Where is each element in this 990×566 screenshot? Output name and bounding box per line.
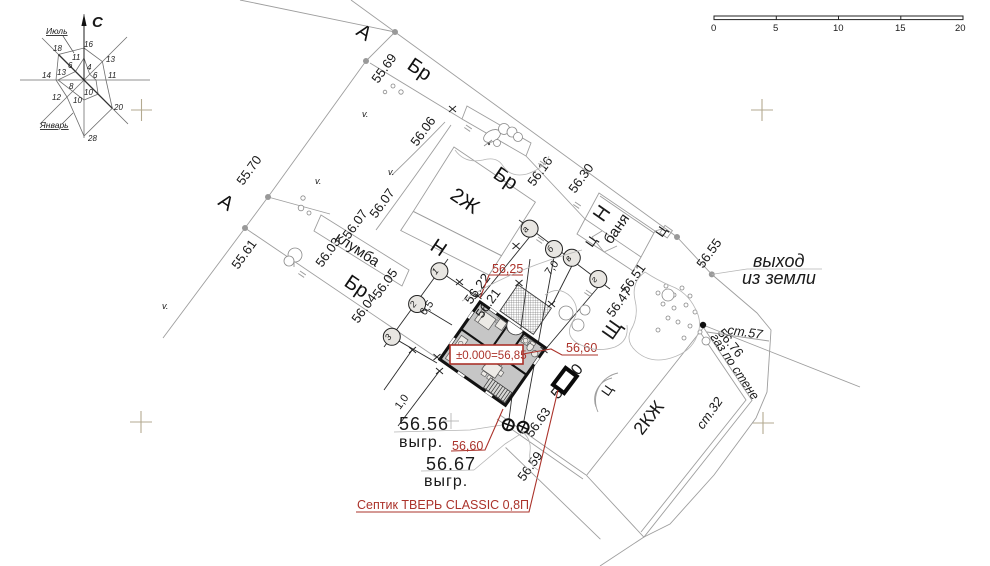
svg-text:18: 18 bbox=[53, 44, 62, 53]
svg-text:13: 13 bbox=[106, 55, 115, 64]
svg-text:C: C bbox=[92, 14, 104, 31]
svg-text:4: 4 bbox=[87, 63, 92, 72]
svg-text:±0.000=56,85: ±0.000=56,85 bbox=[456, 350, 527, 362]
svg-text:6: 6 bbox=[93, 71, 98, 80]
svg-text:из земли: из земли bbox=[742, 268, 816, 288]
svg-text:v.: v. bbox=[315, 176, 321, 186]
svg-text:14: 14 bbox=[42, 71, 51, 80]
svg-text:56,60: 56,60 bbox=[566, 341, 597, 355]
svg-text:20: 20 bbox=[113, 103, 123, 112]
svg-text:выгр.: выгр. bbox=[399, 434, 443, 451]
svg-text:8: 8 bbox=[69, 82, 74, 91]
svg-text:6: 6 bbox=[68, 61, 73, 70]
svg-text:10: 10 bbox=[833, 23, 844, 34]
svg-text:11: 11 bbox=[72, 53, 80, 62]
svg-text:10: 10 bbox=[84, 88, 93, 97]
svg-text:28: 28 bbox=[87, 134, 97, 143]
svg-text:16: 16 bbox=[84, 40, 93, 49]
svg-text:v.: v. bbox=[162, 301, 168, 311]
svg-text:56,25: 56,25 bbox=[492, 262, 523, 276]
svg-text:выгр.: выгр. bbox=[424, 473, 468, 490]
svg-text:12: 12 bbox=[52, 93, 61, 102]
svg-text:20: 20 bbox=[955, 23, 966, 34]
svg-text:v.: v. bbox=[388, 167, 394, 177]
svg-text:Септик ТВЕРЬ CLASSIC 0,8П: Септик ТВЕРЬ CLASSIC 0,8П bbox=[357, 498, 529, 512]
svg-text:0: 0 bbox=[711, 23, 716, 34]
svg-text:10: 10 bbox=[73, 96, 82, 105]
svg-text:5: 5 bbox=[773, 23, 778, 34]
svg-text:15: 15 bbox=[895, 23, 906, 34]
svg-text:v.: v. bbox=[362, 109, 368, 119]
svg-text:Июль: Июль bbox=[46, 26, 68, 36]
svg-text:11: 11 bbox=[108, 71, 116, 80]
svg-text:13: 13 bbox=[57, 68, 66, 77]
